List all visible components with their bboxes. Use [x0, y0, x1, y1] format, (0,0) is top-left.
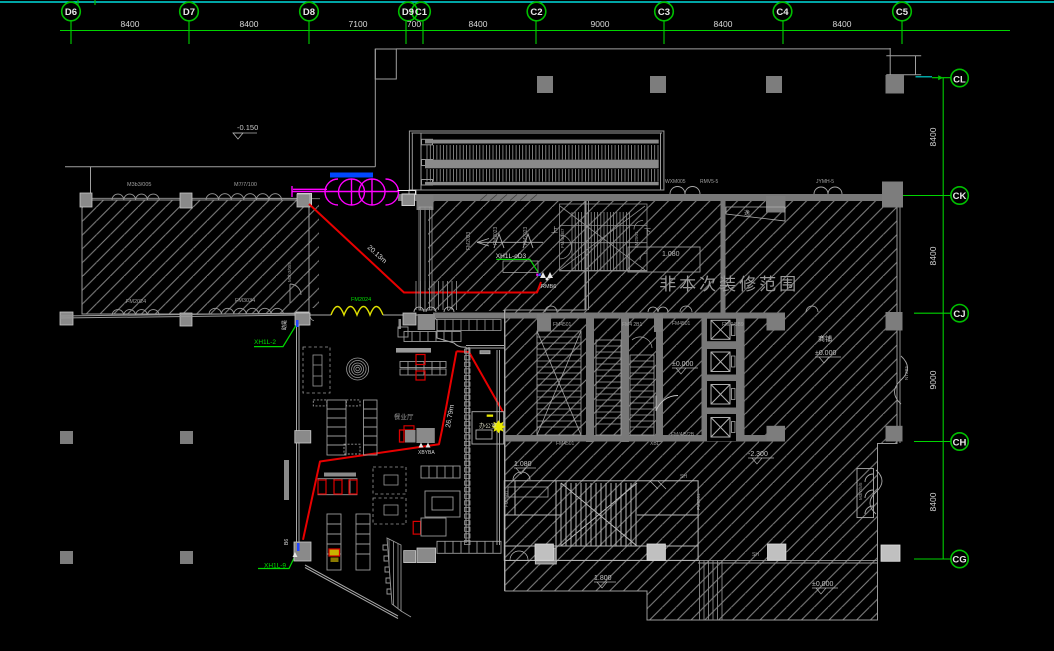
svg-text:D8: D8	[303, 7, 315, 18]
svg-text:SH: SH	[680, 474, 687, 480]
svg-text:FM3034: FM3034	[235, 298, 255, 304]
svg-text:FM2023: FM2023	[493, 226, 499, 245]
svg-text:RMV5-5: RMV5-5	[700, 179, 719, 185]
svg-text:M3b3/055: M3b3/055	[287, 261, 292, 282]
svg-text:7100: 7100	[349, 19, 368, 29]
svg-text:CK: CK	[953, 191, 967, 202]
svg-text:FM4501: FM4501	[553, 322, 572, 328]
svg-text:1.800: 1.800	[594, 575, 612, 582]
svg-text:FM4501: FM4501	[672, 321, 691, 327]
svg-text:FM2024: FM2024	[351, 297, 371, 303]
svg-text:XH1L-2: XH1L-2	[254, 339, 276, 346]
svg-text:M3/7/5/5: M3/7/5/5	[858, 482, 863, 500]
svg-text:助是: 助是	[281, 320, 288, 330]
svg-text:XBL: XBL	[650, 441, 660, 447]
svg-text:FM2023: FM2023	[466, 231, 472, 250]
svg-text:办公室: 办公室	[479, 422, 497, 430]
svg-text:下: 下	[644, 228, 651, 236]
svg-text:C3: C3	[658, 7, 670, 18]
svg-text:FM2501: FM2501	[504, 490, 509, 507]
svg-text:M7/7/100: M7/7/100	[234, 182, 257, 188]
svg-text:上: 上	[551, 225, 558, 234]
svg-text:C1: C1	[415, 7, 428, 18]
svg-text:XH1L-oD3: XH1L-oD3	[496, 253, 527, 260]
svg-text:8400: 8400	[833, 19, 852, 29]
svg-text:FM2023: FM2023	[523, 226, 529, 245]
svg-text:1.080: 1.080	[514, 461, 532, 468]
svg-text:FM2024: FM2024	[126, 299, 146, 305]
svg-text:8400: 8400	[928, 246, 938, 265]
svg-text:-0.150: -0.150	[237, 123, 258, 132]
svg-text:非本次装修范围: 非本次装修范围	[659, 275, 799, 294]
svg-text:D6: D6	[65, 7, 77, 18]
svg-text:FM4501: FM4501	[556, 441, 575, 447]
svg-text:8400: 8400	[121, 19, 140, 29]
svg-text:FM/4/5B7: FM/4/5B7	[560, 228, 565, 248]
svg-text:9000: 9000	[591, 19, 610, 29]
svg-text:C5: C5	[896, 7, 909, 18]
svg-text:RMB6: RMB6	[541, 284, 556, 290]
svg-text:8400: 8400	[469, 19, 488, 29]
svg-text:FM/4/5/2B: FM/4/5/2B	[671, 432, 695, 438]
svg-text:8400: 8400	[928, 127, 938, 146]
svg-text:-2.300: -2.300	[748, 451, 768, 458]
svg-text:JYMH-5: JYMH-5	[816, 179, 834, 185]
svg-text:XBYBA: XBYBA	[418, 450, 435, 456]
svg-text:8400: 8400	[928, 492, 938, 511]
svg-text:CG: CG	[952, 555, 966, 566]
svg-text:M3b3/005: M3b3/005	[127, 182, 151, 188]
svg-text:C2: C2	[530, 7, 542, 18]
svg-text:FM2501: FM2501	[696, 493, 701, 510]
svg-text:逸: 逸	[744, 209, 750, 217]
svg-text:WXM005: WXM005	[665, 179, 686, 185]
svg-text:FM/0/6B9: FM/0/6B9	[722, 322, 744, 328]
svg-text:8400: 8400	[714, 19, 733, 29]
svg-text:±0.000: ±0.000	[672, 361, 693, 368]
svg-text:9000: 9000	[928, 370, 938, 389]
svg-text:商铺: 商铺	[818, 334, 832, 343]
svg-text:C4: C4	[776, 7, 789, 18]
svg-text:XH1L-9: XH1L-9	[264, 563, 286, 570]
svg-text:D9: D9	[402, 7, 414, 18]
svg-text:±0.000: ±0.000	[812, 581, 833, 588]
svg-text:B6: B6	[284, 539, 290, 545]
svg-text:FM2501: FM2501	[634, 231, 639, 248]
svg-text:餐业厅: 餐业厅	[394, 412, 414, 421]
svg-text:CH: CH	[953, 438, 967, 449]
svg-text:8400: 8400	[240, 19, 259, 29]
svg-text:±0.000: ±0.000	[815, 350, 836, 357]
svg-text:FM4 2B1: FM4 2B1	[622, 322, 643, 328]
svg-text:1.080: 1.080	[662, 251, 680, 258]
svg-text:D7: D7	[183, 7, 195, 18]
svg-text:CJ: CJ	[953, 309, 965, 320]
svg-text:CL: CL	[953, 74, 966, 85]
svg-text:700: 700	[407, 19, 421, 29]
svg-text:SH: SH	[752, 552, 759, 558]
